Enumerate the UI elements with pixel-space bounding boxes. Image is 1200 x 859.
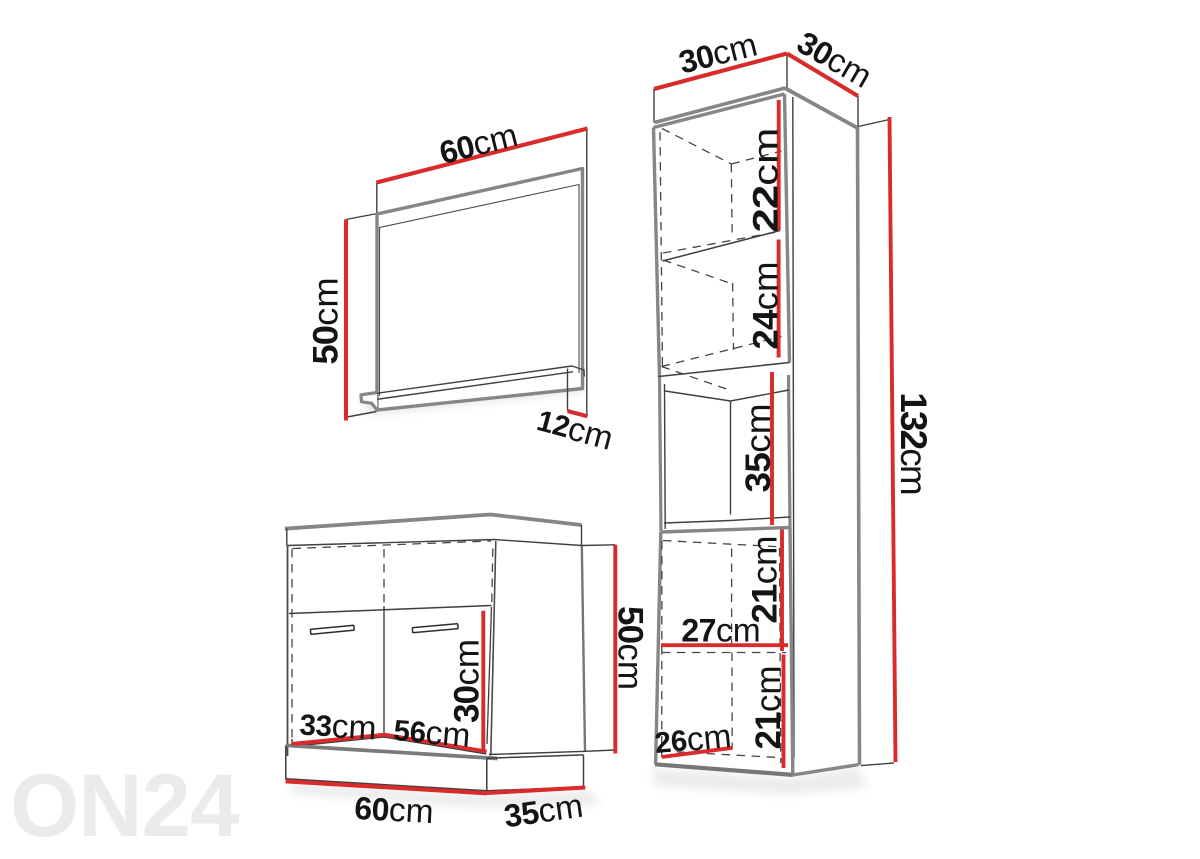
svg-text:ON24: ON24 bbox=[10, 755, 240, 855]
svg-text:35cm: 35cm bbox=[738, 404, 778, 493]
svg-text:12cm: 12cm bbox=[533, 402, 617, 458]
svg-text:27cm: 27cm bbox=[681, 612, 760, 649]
svg-text:60cm: 60cm bbox=[353, 789, 434, 830]
svg-text:24cm: 24cm bbox=[746, 261, 785, 349]
svg-text:30cm: 30cm bbox=[447, 639, 486, 723]
svg-text:26cm: 26cm bbox=[653, 717, 733, 761]
svg-text:33cm: 33cm bbox=[299, 706, 378, 747]
svg-text:60cm: 60cm bbox=[436, 116, 522, 171]
svg-text:50cm: 50cm bbox=[611, 606, 650, 690]
svg-text:21cm: 21cm bbox=[749, 666, 788, 750]
svg-text:132cm: 132cm bbox=[894, 392, 935, 494]
svg-text:21cm: 21cm bbox=[745, 535, 784, 623]
svg-text:22cm: 22cm bbox=[747, 128, 786, 233]
svg-text:30cm: 30cm bbox=[791, 24, 878, 96]
svg-text:50cm: 50cm bbox=[306, 277, 345, 364]
